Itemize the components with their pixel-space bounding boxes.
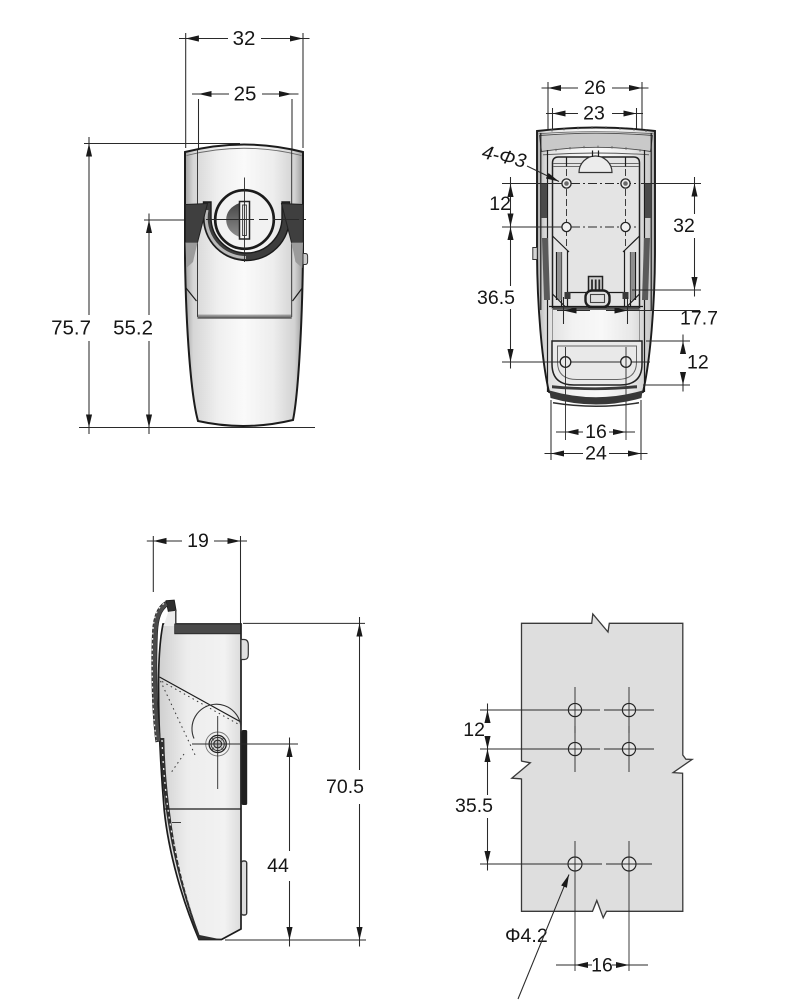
svg-text:16: 16 (591, 955, 613, 977)
svg-text:32: 32 (233, 27, 256, 50)
svg-text:36.5: 36.5 (477, 287, 515, 309)
svg-text:4-Φ3: 4-Φ3 (480, 141, 528, 172)
svg-text:12: 12 (489, 193, 511, 215)
svg-text:17.7: 17.7 (680, 308, 718, 330)
svg-text:24: 24 (585, 443, 607, 465)
svg-text:Φ4.2: Φ4.2 (505, 925, 548, 947)
svg-text:19: 19 (187, 530, 209, 552)
svg-text:32: 32 (673, 215, 695, 237)
svg-text:44: 44 (267, 855, 289, 877)
svg-text:55.2: 55.2 (113, 317, 153, 340)
svg-text:26: 26 (584, 77, 606, 99)
svg-text:12: 12 (687, 352, 709, 374)
svg-text:70.5: 70.5 (326, 776, 364, 798)
svg-text:35.5: 35.5 (455, 795, 493, 817)
svg-text:23: 23 (583, 103, 605, 125)
svg-text:16: 16 (585, 421, 607, 443)
svg-text:12: 12 (463, 719, 485, 741)
svg-text:75.7: 75.7 (51, 317, 91, 340)
svg-text:25: 25 (234, 83, 257, 106)
